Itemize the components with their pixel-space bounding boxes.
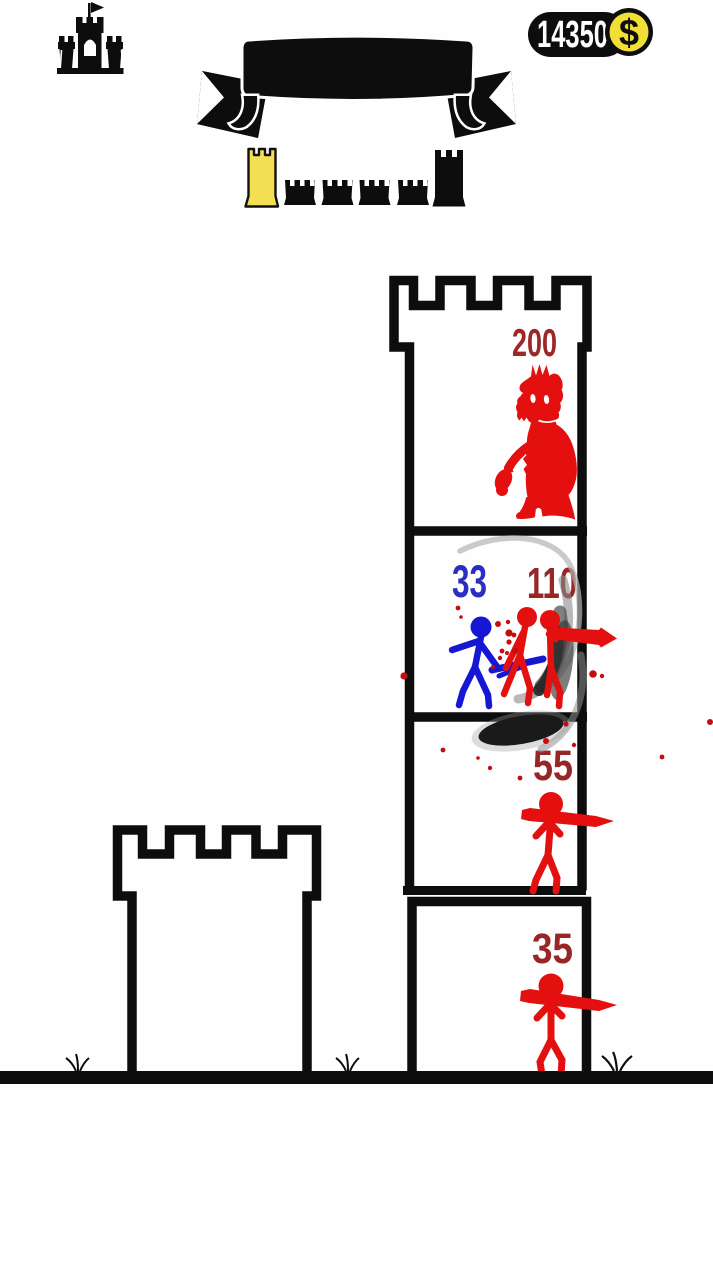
svg-text:200: 200	[512, 322, 557, 365]
svg-text:33: 33	[452, 556, 487, 607]
svg-text:14350: 14350	[537, 14, 608, 56]
svg-text:$: $	[619, 12, 639, 53]
svg-text:35: 35	[532, 925, 573, 973]
